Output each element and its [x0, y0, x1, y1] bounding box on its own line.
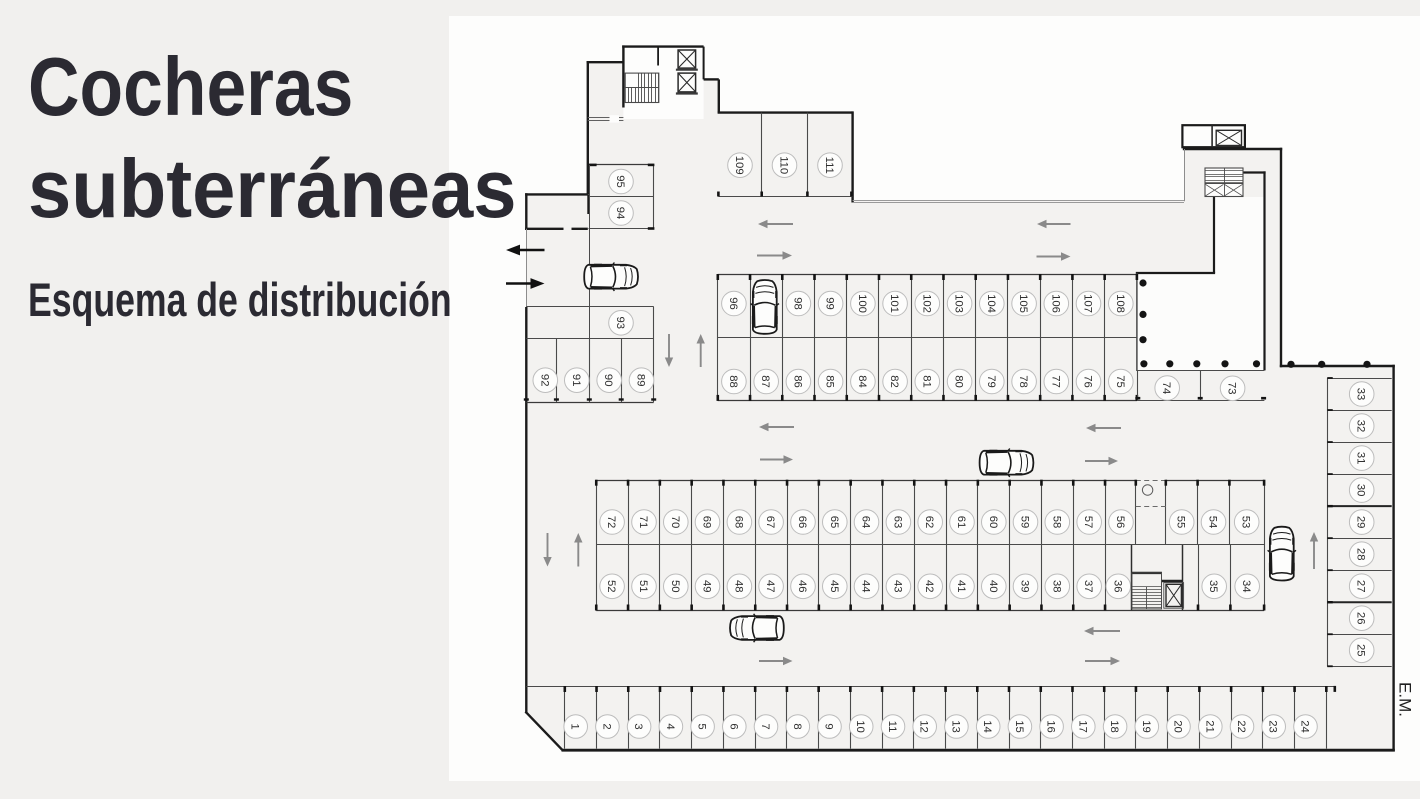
svg-text:49: 49 — [701, 580, 713, 593]
svg-text:81: 81 — [920, 375, 932, 388]
svg-text:24: 24 — [1299, 720, 1311, 733]
svg-text:21: 21 — [1203, 720, 1215, 733]
svg-text:95: 95 — [614, 175, 626, 188]
svg-text:42: 42 — [923, 580, 935, 593]
svg-text:17: 17 — [1076, 720, 1088, 733]
svg-text:18: 18 — [1108, 720, 1120, 733]
svg-text:56: 56 — [1114, 516, 1126, 529]
svg-text:20: 20 — [1172, 720, 1184, 733]
svg-text:50: 50 — [669, 580, 681, 593]
svg-text:84: 84 — [856, 375, 868, 388]
svg-text:10: 10 — [854, 720, 866, 733]
svg-text:79: 79 — [985, 375, 997, 388]
svg-text:41: 41 — [955, 580, 967, 593]
svg-text:54: 54 — [1207, 516, 1219, 529]
svg-text:43: 43 — [891, 580, 903, 593]
svg-text:64: 64 — [860, 516, 872, 529]
svg-text:82: 82 — [888, 375, 900, 388]
svg-text:73: 73 — [1226, 382, 1238, 395]
svg-text:57: 57 — [1082, 516, 1094, 529]
svg-text:90: 90 — [602, 374, 614, 387]
svg-text:52: 52 — [605, 580, 617, 593]
svg-text:85: 85 — [824, 375, 836, 388]
svg-text:E.M.: E.M. — [1396, 682, 1415, 717]
svg-text:103: 103 — [953, 294, 965, 313]
svg-text:76: 76 — [1082, 375, 1094, 388]
svg-text:38: 38 — [1050, 580, 1062, 593]
svg-text:27: 27 — [1355, 580, 1367, 593]
svg-text:31: 31 — [1355, 452, 1367, 465]
svg-text:108: 108 — [1114, 294, 1126, 313]
svg-text:86: 86 — [791, 375, 803, 388]
svg-text:104: 104 — [985, 294, 997, 313]
svg-text:89: 89 — [635, 374, 647, 387]
svg-text:106: 106 — [1049, 294, 1061, 313]
svg-text:23: 23 — [1267, 720, 1279, 733]
svg-text:8: 8 — [791, 723, 803, 729]
svg-text:68: 68 — [732, 516, 744, 529]
svg-text:25: 25 — [1355, 644, 1367, 657]
svg-text:99: 99 — [824, 297, 836, 310]
svg-text:16: 16 — [1045, 720, 1057, 733]
svg-text:63: 63 — [891, 516, 903, 529]
svg-text:92: 92 — [538, 374, 550, 387]
svg-text:48: 48 — [732, 580, 744, 593]
svg-text:35: 35 — [1207, 580, 1219, 593]
svg-text:75: 75 — [1114, 375, 1126, 388]
svg-text:11: 11 — [886, 721, 898, 733]
svg-text:19: 19 — [1140, 720, 1152, 733]
svg-text:61: 61 — [955, 516, 967, 529]
svg-text:12: 12 — [918, 720, 930, 733]
svg-text:105: 105 — [1017, 294, 1029, 313]
svg-text:62: 62 — [923, 516, 935, 529]
svg-text:69: 69 — [701, 516, 713, 529]
svg-text:94: 94 — [614, 207, 626, 220]
svg-text:2: 2 — [600, 723, 612, 729]
svg-text:44: 44 — [860, 580, 872, 593]
svg-text:45: 45 — [828, 580, 840, 593]
svg-text:96: 96 — [727, 297, 739, 310]
svg-text:78: 78 — [1017, 375, 1029, 388]
svg-text:102: 102 — [920, 294, 932, 313]
svg-text:4: 4 — [664, 723, 676, 729]
svg-text:28: 28 — [1355, 548, 1367, 561]
svg-text:98: 98 — [791, 297, 803, 310]
svg-text:13: 13 — [949, 720, 961, 733]
svg-text:39: 39 — [1019, 580, 1031, 593]
svg-text:66: 66 — [796, 516, 808, 529]
svg-text:6: 6 — [727, 723, 739, 729]
svg-text:88: 88 — [727, 375, 739, 388]
svg-text:7: 7 — [759, 723, 771, 729]
svg-text:3: 3 — [632, 723, 644, 729]
svg-text:107: 107 — [1082, 294, 1094, 313]
svg-text:60: 60 — [987, 516, 999, 529]
svg-text:9: 9 — [823, 723, 835, 729]
svg-text:65: 65 — [828, 516, 840, 529]
svg-text:71: 71 — [637, 516, 649, 529]
svg-text:87: 87 — [759, 375, 771, 388]
svg-text:47: 47 — [764, 580, 776, 593]
svg-text:33: 33 — [1355, 388, 1367, 401]
svg-text:74: 74 — [1160, 382, 1172, 395]
svg-text:1: 1 — [569, 723, 581, 729]
svg-text:59: 59 — [1019, 516, 1031, 529]
svg-text:15: 15 — [1013, 720, 1025, 733]
svg-text:40: 40 — [987, 580, 999, 593]
svg-text:32: 32 — [1355, 420, 1367, 433]
svg-text:91: 91 — [570, 374, 582, 387]
svg-text:5: 5 — [696, 723, 708, 729]
svg-text:51: 51 — [637, 580, 649, 593]
svg-text:37: 37 — [1082, 580, 1094, 593]
svg-text:77: 77 — [1049, 375, 1061, 388]
svg-text:110: 110 — [778, 156, 790, 174]
svg-text:100: 100 — [856, 294, 868, 313]
svg-text:101: 101 — [888, 294, 900, 313]
svg-text:53: 53 — [1240, 516, 1252, 529]
svg-text:26: 26 — [1355, 612, 1367, 625]
svg-text:30: 30 — [1355, 484, 1367, 497]
svg-text:80: 80 — [953, 375, 965, 388]
svg-text:36: 36 — [1111, 580, 1123, 593]
svg-text:29: 29 — [1355, 516, 1367, 529]
svg-text:34: 34 — [1240, 580, 1252, 593]
svg-text:55: 55 — [1175, 516, 1187, 529]
svg-text:72: 72 — [605, 516, 617, 529]
svg-text:58: 58 — [1050, 516, 1062, 529]
svg-text:109: 109 — [733, 156, 745, 175]
svg-text:14: 14 — [981, 720, 993, 733]
svg-text:111: 111 — [823, 157, 835, 174]
svg-text:22: 22 — [1235, 720, 1247, 733]
svg-text:46: 46 — [796, 580, 808, 593]
svg-text:67: 67 — [764, 516, 776, 529]
svg-text:93: 93 — [614, 317, 626, 330]
svg-text:70: 70 — [669, 516, 681, 529]
